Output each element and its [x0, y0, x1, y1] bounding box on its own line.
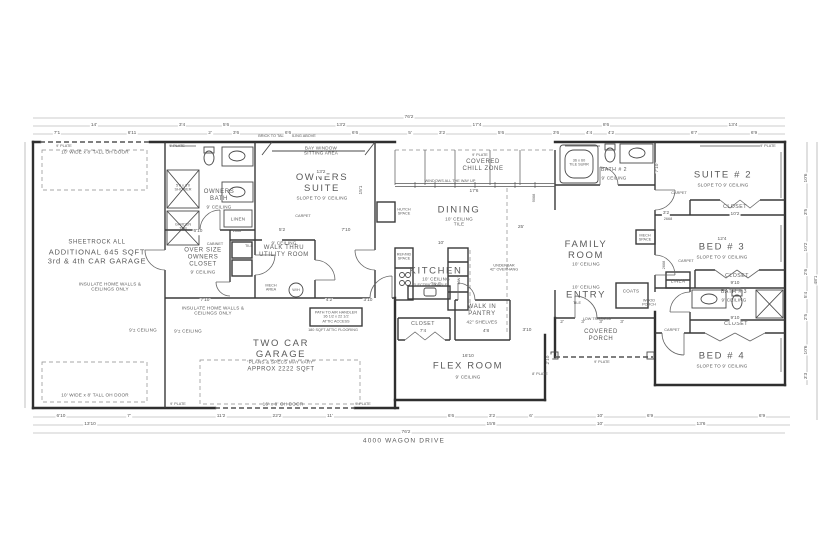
dim-label: 2' [559, 320, 565, 326]
owners-suite-label: OWNERS SUITE [296, 173, 348, 195]
dim-label: 3' [580, 320, 586, 326]
dim-label: 6'6 [284, 131, 292, 137]
dim-label: 13'6 [696, 422, 707, 428]
linen-2-label: LINEN [671, 278, 686, 283]
oh-door-bottom-label: 10' WIDE x 8' TALL OH DOOR [61, 392, 129, 397]
dim-label: 15'1 [359, 185, 365, 196]
dim-label: 13'2 [316, 170, 327, 176]
floorplan-drawing [0, 0, 825, 560]
owners-bath-label: OWNERS BATH [204, 189, 235, 203]
dim-label: 5'2 [278, 228, 286, 234]
dim-label: 25' [517, 225, 525, 231]
ref-space-label: REF/MD SPACE [397, 253, 412, 262]
flex-ceiling-label: 9' CEILING [455, 374, 480, 379]
dining-label: DINING [438, 206, 481, 217]
bath2-vanity-icon [620, 144, 653, 163]
plate-8-label: 8' PLATE [532, 372, 548, 376]
dim-label: 11' [326, 414, 334, 420]
plate-4-label: 9' PLATE [760, 144, 776, 148]
dim-label: 7' [126, 414, 132, 420]
cabinet-label: CABINET [207, 242, 223, 246]
plate-7-label: 9' PLATE [594, 360, 610, 364]
dim-label: 9'10 [730, 281, 741, 287]
bifold-bed4 [705, 333, 765, 341]
dim-label: 10'2 [730, 212, 741, 218]
dim-label: 3'6 [552, 131, 560, 137]
owners-closet-label: OVER SIZE OWNERS CLOSET [184, 248, 221, 269]
suite-2-ceiling-label: SLOPE TO 9' CEILING [698, 182, 749, 187]
plans-note-label: "PLANS & SPECS MAY VARY" [247, 359, 315, 364]
bed-4-label: BED # 4 [699, 352, 746, 363]
bath-2-ceiling-label: 9' CEILING [601, 175, 626, 180]
suite-2-label: SUITE # 2 [694, 171, 752, 182]
garage-oh-door-label: 16' x 8' OH DOOR [263, 401, 304, 406]
dim-label: 76'2 [404, 115, 415, 121]
carpet-3-label: CARPET [678, 259, 693, 263]
dim-label: 6'9 [758, 414, 766, 420]
door-tag-4-label: 2668 [662, 261, 666, 269]
dim-label: 10' [437, 241, 445, 247]
owners-toilet-icon [204, 147, 214, 165]
dim-label: 13'2 [336, 123, 347, 129]
dim-label: 7'4 [419, 329, 427, 335]
dim-label: 7'1 [53, 131, 61, 137]
flex-room-label: FLEX ROOM [433, 362, 503, 373]
bath3-shower-icon [756, 290, 783, 318]
wood-porch-label: WOOD PORCH [642, 299, 656, 308]
dim-label: 14' [90, 123, 98, 129]
dim-label: 10'6 [804, 173, 810, 184]
ceiling-note-2-label: 9'± CEILING [174, 328, 202, 333]
bath2-toilet-icon [605, 144, 615, 162]
plate-2-label: 9' PLATE [169, 144, 185, 148]
dim-label: 6'11 [127, 131, 138, 137]
dim-label: 6'9 [646, 414, 654, 420]
hutch-label: HUTCH SPACE [397, 208, 410, 217]
bath-3-label: BATH # 3 [721, 290, 747, 296]
tile-2-label: TILE [245, 244, 253, 248]
ceiling-note-1-label: 9'± CEILING [129, 327, 157, 332]
plate-3-label: 9' PLATE [472, 153, 488, 157]
door-tag-1-label: 9068 [532, 194, 536, 202]
low-transom-label: LOW TRANSOM [583, 317, 612, 321]
dim-label: 10'2 [804, 242, 810, 253]
address-label: 4000 WAGON DRIVE [363, 437, 445, 444]
dim-label: 10' [596, 414, 604, 420]
bed-4-ceiling-label: SLOPE TO 9' CEILING [697, 363, 748, 368]
tub-bath2-label: 36 x 60 TILE SURR [569, 159, 589, 168]
dim-label: 7'10 [655, 163, 661, 174]
pantry-label: WALK IN PANTRY [468, 304, 497, 318]
dim-label: 2'10 [546, 355, 552, 366]
attic-access-label: PATH TO AIR HANDLER 36 1/2 x 22 1/2 ATTI… [315, 310, 357, 323]
dim-label: 5' [407, 131, 413, 137]
dim-label: 5'4 [804, 291, 810, 299]
dim-label: 3'6 [232, 131, 240, 137]
dim-label: 5'6 [222, 123, 230, 129]
oh-door-top-zone [42, 150, 147, 190]
dim-label: 5'6 [497, 131, 505, 137]
attic-flooring-label: 180 SQFT ATTIC FLOORING [308, 328, 358, 332]
dim-label: 6'7 [690, 131, 698, 137]
dim-label: 10' [596, 422, 604, 428]
dim-label: 6'10 [193, 229, 204, 235]
bed-3-ceiling-label: SLOPE TO 9' CEILING [697, 254, 748, 259]
closet-suite2-label: CLOSET [723, 205, 747, 211]
dim-label: 4'2 [607, 131, 615, 137]
dim-label: 8'6 [602, 123, 610, 129]
dim-label: 9'10 [730, 316, 741, 322]
dim-label: 17'6 [469, 189, 480, 195]
dim-label: 10'6 [804, 345, 810, 356]
dim-label: 3'10 [363, 298, 374, 304]
pantry-shelves-label: 42" SHELVES [466, 319, 497, 324]
porch-post-right [647, 352, 654, 359]
underbar-label: UNDERBAR 42" OVERHANG [490, 264, 518, 273]
dim-label: 3'10 [522, 328, 533, 334]
dim-label: 11'2 [216, 414, 227, 420]
owners-bath-ceiling-label: 9' CEILING [206, 204, 231, 209]
dim-label: 22'2 [272, 414, 283, 420]
dim-label: 3'2 [662, 211, 670, 217]
owners-closet-ceiling-label: 9' CEILING [190, 269, 215, 274]
plate-5-label: 9' PLATE [170, 402, 186, 406]
mech-space-label: MECH SPACE [639, 234, 652, 243]
dim-label: 7'10 [200, 298, 211, 304]
dim-label: 12'4 [717, 237, 728, 243]
electric-isle-label: ELECTRIC TO ISLE [413, 283, 447, 287]
family-ceiling-label: 10' CEILING [572, 261, 600, 266]
chill-zone-label: COVERED CHILL ZONE [462, 159, 503, 173]
dining-ceiling-label: 10' CEILING TILE [445, 217, 473, 228]
utility-label: WALK THRU UTILITY ROOM [259, 245, 309, 259]
dim-label: 16'10 [461, 354, 475, 360]
entry-label: ENTRY [566, 291, 606, 302]
dim-label: 3'3 [804, 372, 810, 380]
two-car-garage-label: TWO CAR GARAGE [253, 339, 309, 361]
closet-flex-label: CLOSET [411, 322, 435, 328]
dim-label: 3' [619, 320, 625, 326]
dim-label: 2' [207, 131, 213, 137]
owners-suite-ceiling-label: SLOPE TO 9' CEILING [297, 195, 348, 200]
dim-label: 48'1 [814, 275, 820, 286]
dim-label: 2'5 [804, 313, 810, 321]
bay-window-label: BAY WINDOW SITTING AREA [304, 146, 338, 157]
dim-label: 6'10 [56, 414, 67, 420]
dim-label: 17'4 [472, 123, 483, 129]
dim-label: 15'8 [486, 422, 497, 428]
oh-door-top-label: 10' WIDE x 8' TALL OH DOOR [61, 149, 129, 154]
hutch-niche [377, 202, 395, 222]
plate-6-label: 9' PLATE [355, 402, 371, 406]
plate-1-label: 9' PLATE [56, 144, 72, 148]
door-tag-3-label: 2668 [664, 217, 672, 221]
bed-3-label: BED # 3 [699, 243, 746, 254]
dim-label: 7'10 [341, 228, 352, 234]
floor-plan-page: OWNERS SUITESLOPE TO 9' CEILINGBAY WINDO… [0, 0, 825, 560]
dim-label: 3'2 [438, 131, 446, 137]
mech-area-label: MECH AREA [265, 284, 276, 293]
shower-owners-label: 5'0 x 3'0 SHOWER [174, 184, 191, 193]
insulate-note-1-label: INSULATE HOME WALLS & CEILINGS ONLY [79, 282, 141, 293]
mw-label: MW [457, 278, 461, 285]
tub-owners-label: GARDEN TUB [175, 223, 191, 232]
dim-label: 6'6 [351, 131, 359, 137]
dim-label: 4'4 [585, 131, 593, 137]
closet-bed4-label: CLOSET [724, 322, 748, 328]
dim-label: 3' [598, 320, 604, 326]
dim-label: 4'2 [325, 298, 333, 304]
bath-3-ceiling-label: 9' CEILING [721, 297, 746, 302]
island-sink-icon [424, 288, 436, 296]
dim-label: 13'10 [83, 422, 97, 428]
door-tag-2-label: 2668 [233, 229, 241, 233]
dim-label: 3'5 [804, 208, 810, 216]
insulate-note-2-label: INSULATE HOME WALLS & CEILINGS ONLY [182, 306, 244, 317]
additional-note-label: ADDITIONAL 645 SQFT 3rd & 4th CAR GARAGE [48, 248, 147, 265]
linen-1-label: LINEN [231, 216, 246, 221]
approx-note-label: APPROX 2222 SQFT [247, 367, 314, 374]
porch-label: COVERED PORCH [584, 329, 618, 343]
sheetrock-note-label: SHEETROCK ALL [68, 240, 125, 247]
bath-2-label: BATH # 2 [601, 168, 627, 174]
dim-label: 6' [528, 414, 534, 420]
dim-label: 6'6 [447, 414, 455, 420]
dim-label: 3'2 [488, 414, 496, 420]
dim-label: 76'2 [401, 430, 412, 436]
carpet-4-label: CARPET [664, 328, 679, 332]
tile-1-label: TILE [573, 301, 581, 305]
coats-label: COATS [623, 288, 639, 293]
windows-note-label: WINDOWS ALL THE WAY UP [425, 179, 476, 183]
family-room-label: FAMILY ROOM [565, 240, 608, 262]
wh-label: W/H [292, 288, 299, 292]
closet-bed3-label: CLOSET [725, 274, 749, 280]
carpet-2-label: CARPET [671, 191, 686, 195]
dryer-box [232, 260, 252, 276]
carpet-1-label: CARPET [295, 214, 310, 218]
dim-label: 3'4 [178, 123, 186, 129]
dim-label: 13'4 [728, 123, 739, 129]
dim-label: 4'8 [482, 329, 490, 335]
dim-label: 2'6 [804, 268, 810, 276]
dim-label: 6'9 [750, 131, 758, 137]
